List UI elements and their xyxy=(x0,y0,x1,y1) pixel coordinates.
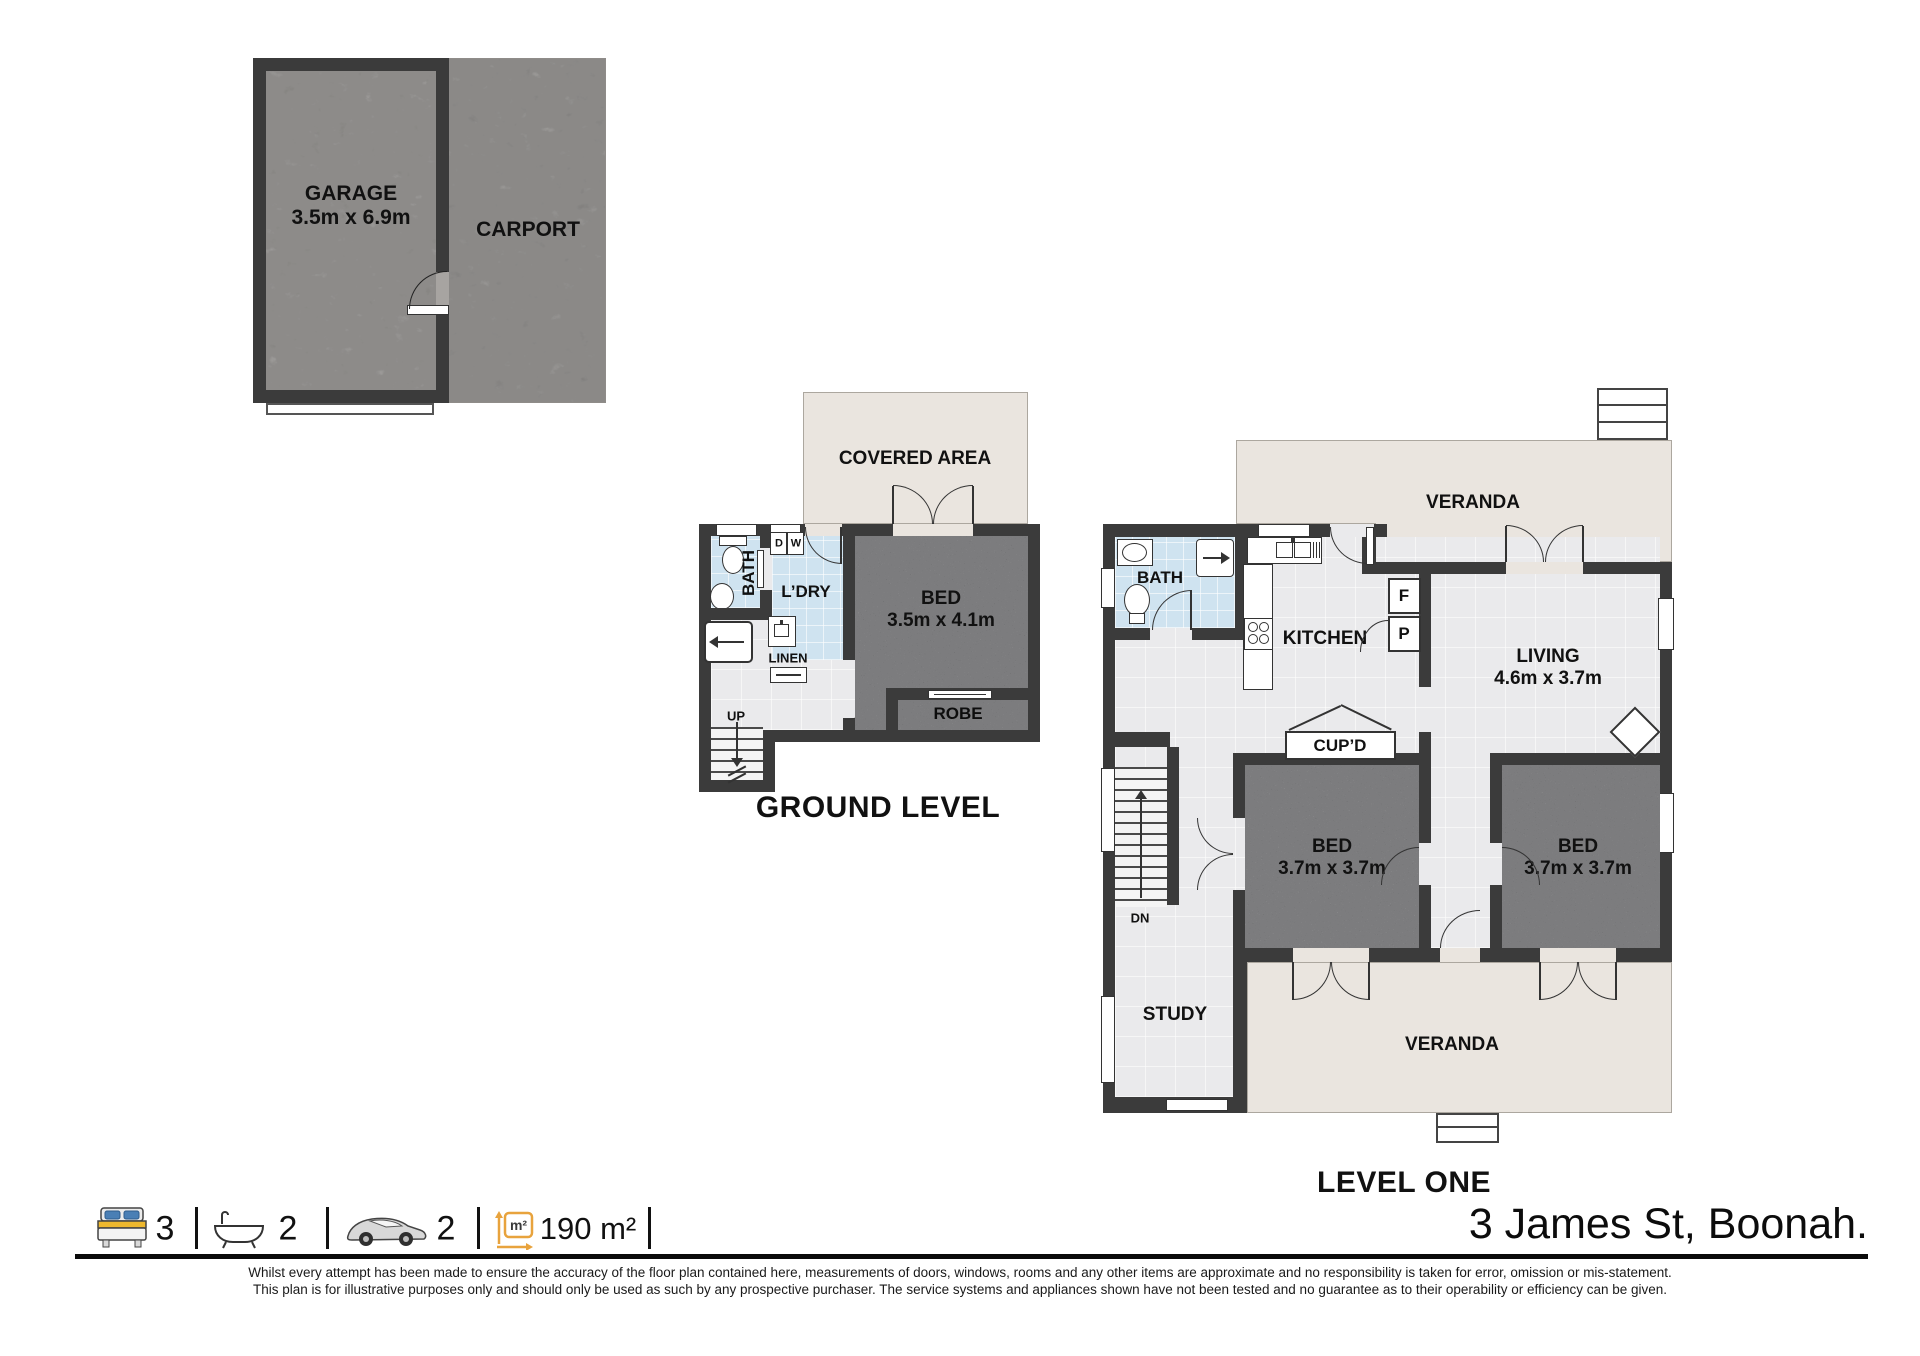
baths-count: 2 xyxy=(279,1210,298,1249)
garage-room xyxy=(266,71,436,390)
l1-bath-label: BATH xyxy=(1137,568,1183,588)
kitchen-sink-left xyxy=(1276,542,1293,558)
toilet-icon xyxy=(1124,584,1150,616)
window xyxy=(1258,524,1310,537)
laundry-faucet xyxy=(780,620,783,624)
living-french-gap xyxy=(1506,562,1583,574)
ground-bed-room xyxy=(855,536,1028,730)
toilet-base xyxy=(1129,613,1145,624)
cupboard-label: CUP’D xyxy=(1314,736,1367,756)
ground-bed-label: BED3.5m x 4.1m xyxy=(887,588,995,632)
entry-arrow-head xyxy=(709,636,718,648)
french-leaf-left xyxy=(892,486,894,524)
ground-french-gap xyxy=(893,524,973,536)
ground-bath-label: BATH xyxy=(739,550,759,596)
kitchen-faucet xyxy=(1291,537,1295,543)
bath-icon xyxy=(212,1208,266,1250)
entry-arrow xyxy=(716,641,744,643)
kitchen-sink-right xyxy=(1294,542,1311,558)
window xyxy=(716,524,757,536)
bed2-veranda-leaf-left xyxy=(1539,962,1541,1000)
ground-bath-bottom-wall xyxy=(699,608,772,620)
window xyxy=(1658,598,1674,650)
l1-stair-arrow-shaft xyxy=(1140,798,1142,898)
toilet-tank xyxy=(719,536,747,546)
window xyxy=(1658,793,1674,853)
disclaimer-line1: Whilst every attempt has been made to en… xyxy=(0,1265,1920,1280)
living-french-leaf-right xyxy=(1582,526,1584,562)
pantry-label: P xyxy=(1398,624,1409,644)
kitchen-label: KITCHEN xyxy=(1283,628,1367,650)
dryer-label: D xyxy=(775,538,783,551)
linen-label: LINEN xyxy=(769,652,808,667)
hall-veranda-gap xyxy=(1440,948,1480,962)
svg-text:m²: m² xyxy=(510,1217,527,1233)
cars-count: 2 xyxy=(437,1210,456,1249)
living-label: LIVING4.6m x 3.7m xyxy=(1494,646,1602,690)
covered-door-leaf xyxy=(840,527,842,564)
robe-label: ROBE xyxy=(933,704,982,724)
l1-bath-door-leaf xyxy=(1190,590,1192,630)
cooktop-burner xyxy=(1259,622,1269,632)
garage-label: GARAGE3.5m x 6.9m xyxy=(291,182,410,230)
ground-bed-left-wall-a xyxy=(843,536,855,660)
bed-icon xyxy=(95,1206,149,1250)
shower-arrow xyxy=(1203,557,1223,559)
level-one-title: LEVEL ONE xyxy=(1317,1166,1491,1201)
drainer-lines xyxy=(1313,542,1321,558)
bed2-veranda-leaf-right xyxy=(1615,962,1617,1000)
linen-cabinet-line xyxy=(776,674,801,676)
landing-step-line2 xyxy=(1599,421,1666,423)
window xyxy=(1101,996,1115,1083)
l1-top-door-leaf xyxy=(1366,527,1374,565)
veranda-top-label: VERANDA xyxy=(1426,492,1520,514)
basin-icon xyxy=(1122,543,1147,562)
pocket-door-leaf xyxy=(757,550,764,588)
carport-label: CARPORT xyxy=(476,218,580,242)
covered-area-label: COVERED AREA xyxy=(839,448,991,470)
footer-rule xyxy=(75,1254,1868,1259)
cooktop-burner xyxy=(1248,622,1258,632)
stair-arrow-head xyxy=(731,758,743,767)
shower-arrow-head xyxy=(1221,552,1230,564)
stair-arrow-shaft xyxy=(736,722,738,760)
ground-laundry-label: L’DRY xyxy=(781,582,830,602)
car-icon xyxy=(344,1206,430,1252)
robe-slider-line xyxy=(934,694,986,695)
bed1-veranda-leaf-right xyxy=(1368,962,1370,1000)
legend-divider xyxy=(477,1207,480,1249)
ground-level-title: GROUND LEVEL xyxy=(756,791,1000,826)
legend-divider xyxy=(326,1207,329,1249)
address: 3 James St, Boonah. xyxy=(1000,1200,1868,1249)
beds-count: 3 xyxy=(156,1210,175,1249)
legend-divider xyxy=(195,1207,198,1249)
window xyxy=(1101,768,1115,852)
bed1-veranda-leaf-left xyxy=(1292,962,1294,1000)
dn-label: DN xyxy=(1131,912,1150,927)
fridge-label: F xyxy=(1399,586,1409,606)
bed2-veranda-gap xyxy=(1540,948,1616,962)
l1-bed-right-label: BED3.7m x 3.7m xyxy=(1524,836,1632,880)
l1-stair-arrow-head xyxy=(1135,790,1147,799)
washer-label: W xyxy=(791,538,801,551)
cooktop-burner xyxy=(1259,634,1269,644)
disclaimer-line2: This plan is for illustrative purposes o… xyxy=(0,1282,1920,1297)
basin-icon xyxy=(710,583,734,610)
area-value: 190 m² xyxy=(540,1211,636,1247)
top-landing-steps xyxy=(1597,388,1668,440)
veranda-top-left xyxy=(1236,440,1376,524)
garage-roller-door xyxy=(266,403,434,415)
bed1-veranda-gap xyxy=(1293,948,1369,962)
area-icon: m² xyxy=(494,1208,536,1250)
french-leaf-right xyxy=(972,486,974,524)
study-floor xyxy=(1115,905,1233,1097)
laundry-tub-basin xyxy=(774,624,789,637)
cooktop-burner xyxy=(1248,634,1258,644)
window xyxy=(1101,568,1115,608)
veranda-steps xyxy=(1436,1113,1499,1143)
veranda-bottom-label: VERANDA xyxy=(1405,1034,1499,1056)
l1-bed-left-label: BED3.7m x 3.7m xyxy=(1278,836,1386,880)
study-label: STUDY xyxy=(1143,1004,1207,1026)
living-french-leaf-left xyxy=(1505,526,1507,562)
window xyxy=(1166,1099,1228,1111)
landing-step-line1 xyxy=(1599,404,1666,406)
robe-wall-stub xyxy=(886,688,898,730)
legend-divider xyxy=(648,1207,651,1249)
veranda-steps-line xyxy=(1438,1126,1497,1128)
